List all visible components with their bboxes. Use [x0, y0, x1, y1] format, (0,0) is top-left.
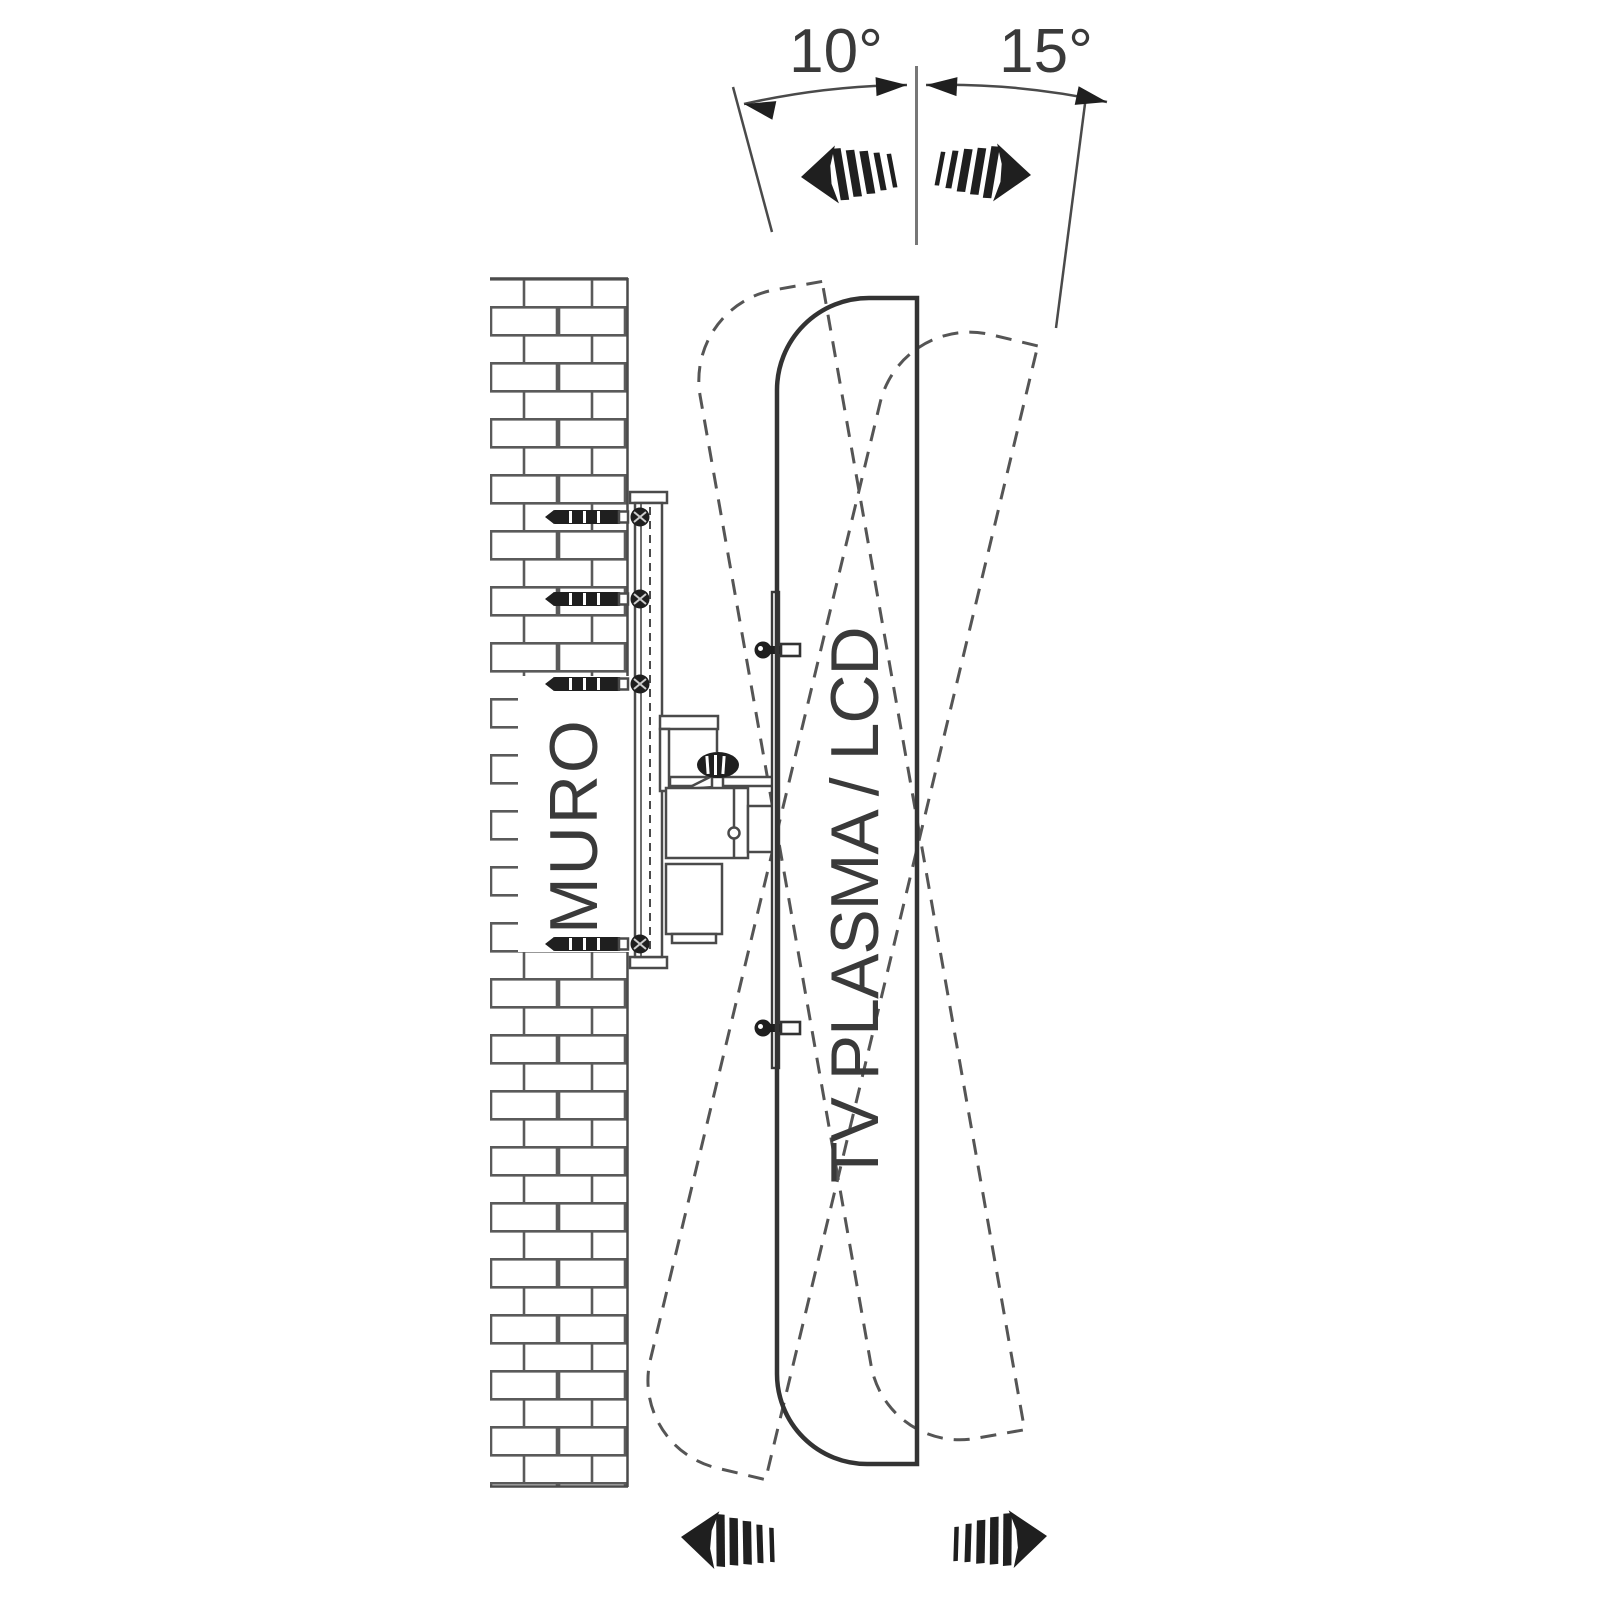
motion-arrow-bottom-right-icon	[949, 1507, 1049, 1573]
anchor-bolt-3	[545, 675, 650, 694]
brick-wall: MURO	[490, 278, 634, 1487]
arm-yoke-left-wall	[660, 729, 669, 791]
anchor-bolt-2	[545, 590, 650, 609]
tilt-knob	[697, 752, 739, 778]
arrowhead-right-outer	[1075, 86, 1109, 111]
angle-leg-right	[1056, 96, 1086, 328]
arm-main-block	[666, 788, 748, 858]
angle-label-left: 10°	[789, 17, 883, 86]
arm-lower-block	[666, 864, 722, 934]
angle-label-right: 15°	[999, 17, 1093, 86]
wall-label: MURO	[536, 718, 612, 934]
motion-arrow-top-left-icon	[799, 141, 898, 206]
arm-lower-lip	[672, 934, 716, 943]
anchor-bolt-1	[545, 508, 650, 527]
wall-plate-top-cap	[630, 492, 667, 503]
tilt-diagram: MURO	[0, 0, 1600, 1600]
motion-arrow-top-right-icon	[934, 139, 1033, 204]
motion-arrow-bottom-left-icon	[678, 1508, 778, 1574]
tv-panel: TV PLASMA / LCD	[777, 298, 917, 1464]
tv-label: TV PLASMA / LCD	[817, 627, 893, 1183]
anchor-bolt-4	[545, 935, 650, 954]
arrowhead-right-inner	[926, 76, 958, 97]
arm-yoke-plate	[660, 716, 718, 729]
angle-dimension: 10° 15°	[733, 17, 1109, 328]
wall-plate-body	[635, 503, 662, 957]
arm-pivot-pin	[729, 828, 740, 839]
diagram-svg: MURO	[0, 0, 1600, 1600]
wall-plate-bottom-cap	[630, 957, 667, 968]
